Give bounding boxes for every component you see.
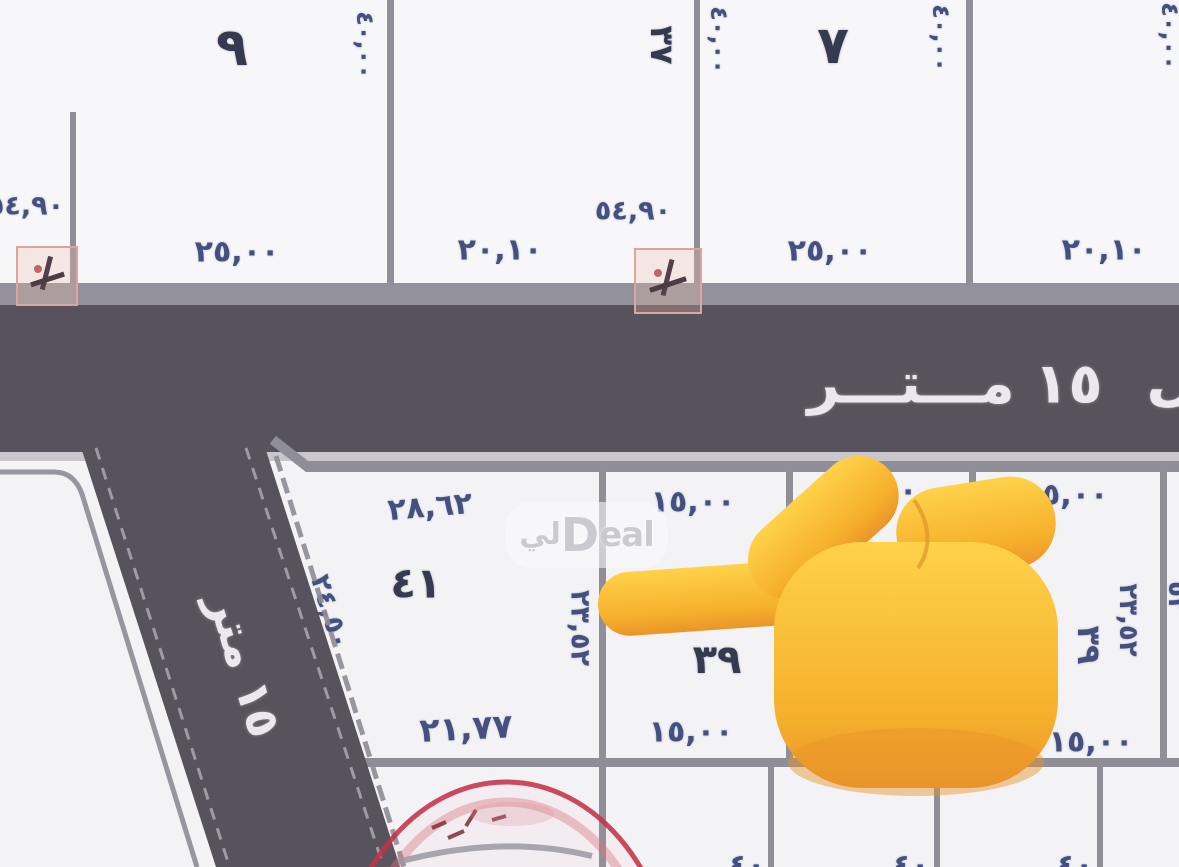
hand-layer [0,0,1179,867]
watermark-latin-text: eal [599,518,654,552]
deal-watermark-badge: ليDeal [505,502,668,568]
watermark-arabic-text: لي [519,520,561,550]
hand-shading [788,728,1044,796]
cadastral-map: ٩ ٧ ٤٠,٠٠ ٣٧ ٤٠,٠٠ ٤٠,٠٠ ٤٠,٠٠ ٥٤,٩٠ ٢٥,… [0,0,1179,867]
watermark-d-letter: D [561,512,599,558]
